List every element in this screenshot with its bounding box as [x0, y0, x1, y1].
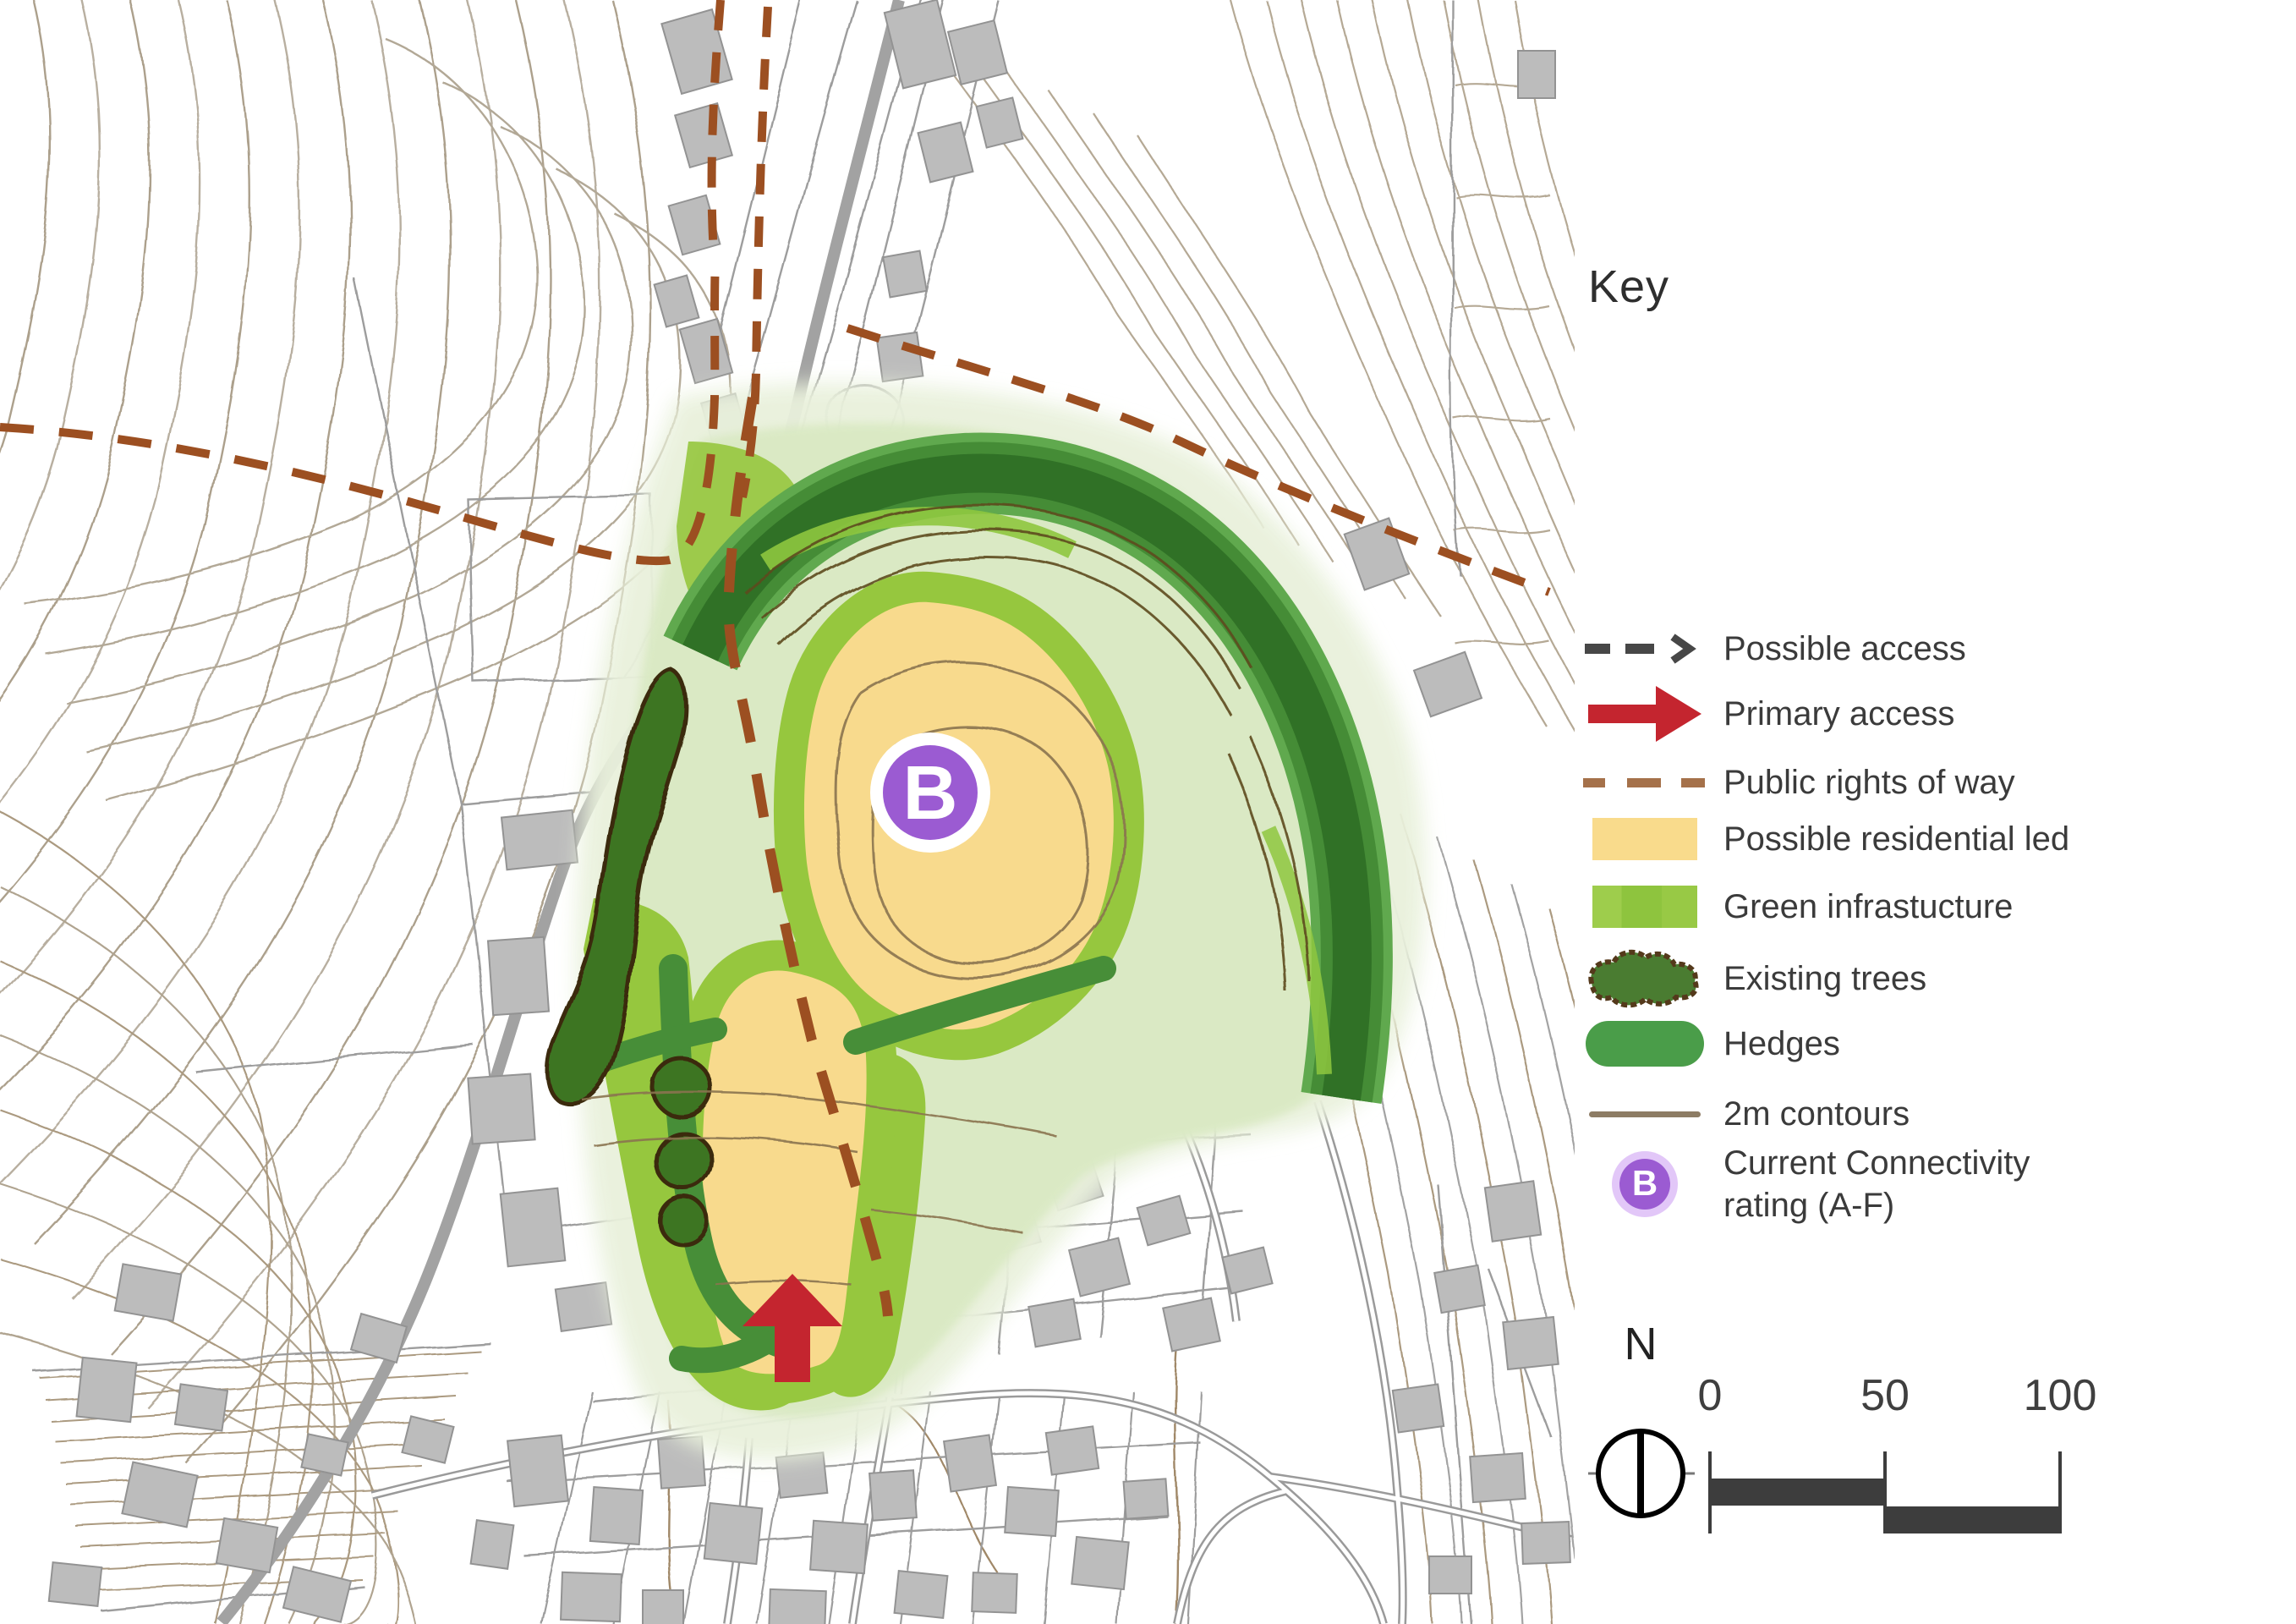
- tree-blob-icon: [1581, 946, 1708, 1012]
- legend: Key Possible access Primary access: [1581, 254, 2173, 1015]
- red-arrow-icon: [1581, 681, 1708, 747]
- scale-bar-segment-1: [1710, 1479, 1885, 1506]
- legend-item-public-rights-of-way: Public rights of way: [1581, 761, 2015, 804]
- legend-item-existing-trees: Existing trees: [1581, 946, 1926, 1012]
- scale-tick-100: 100: [2024, 1370, 2097, 1421]
- legend-item-2m-contours: 2m contours: [1581, 1093, 1910, 1135]
- dashed-arrow-icon: [1581, 632, 1708, 666]
- brown-dashes-icon: [1581, 776, 1708, 789]
- scale-and-compass: N 0 50 100: [1581, 1286, 2123, 1565]
- hedge-pill-icon: [1586, 1021, 1704, 1067]
- green-swatch: [1592, 886, 1697, 928]
- legend-item-connectivity-rating: B Current Connectivity rating (A-F): [1581, 1142, 2030, 1226]
- scale-tick-50: 50: [1860, 1370, 1910, 1421]
- connectivity-badge-letter: B: [903, 751, 958, 836]
- legend-item-hedges: Hedges: [1581, 1021, 1840, 1067]
- compass-icon: [1581, 1286, 1708, 1565]
- legend-item-primary-access: Primary access: [1581, 681, 1954, 747]
- contour-line-icon: [1589, 1111, 1701, 1117]
- legend-item-possible-residential-led: Possible residential led: [1581, 818, 2069, 860]
- scale-tick-0: 0: [1698, 1370, 1723, 1421]
- rating-badge-icon: B: [1612, 1151, 1678, 1217]
- yellow-swatch: [1592, 818, 1697, 860]
- connectivity-badge: B: [870, 732, 990, 853]
- legend-title: Key: [1588, 261, 1669, 313]
- scale-bar-segment-2: [1885, 1506, 2060, 1533]
- legend-item-possible-access: Possible access: [1581, 628, 1966, 670]
- legend-item-green-infrastructure: Green infrastucture: [1581, 886, 2013, 928]
- site-plan-screenshot: B Key Possible access Primary access: [0, 0, 2296, 1624]
